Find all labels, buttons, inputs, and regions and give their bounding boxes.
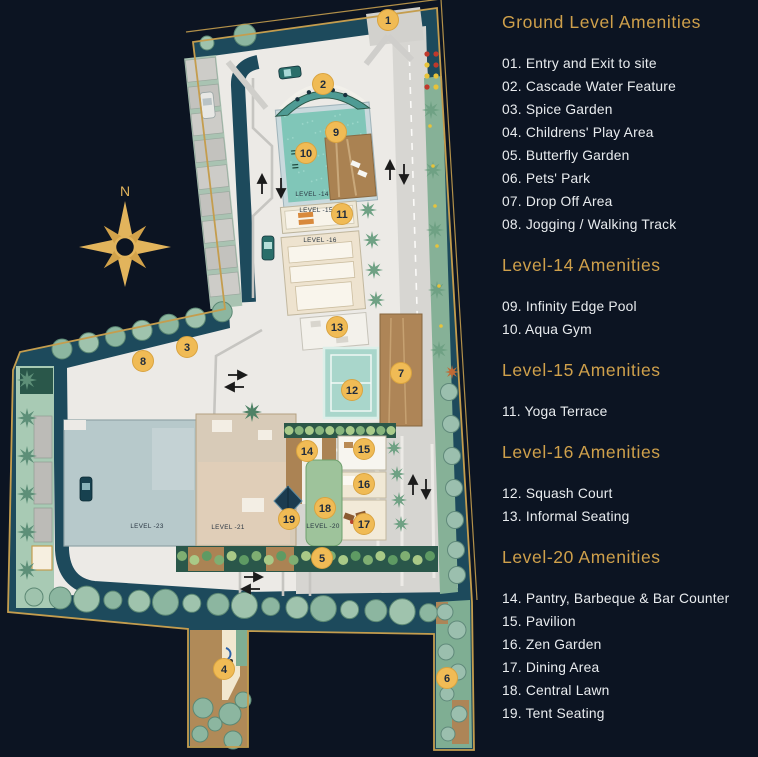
garden-plant-icon <box>251 551 261 561</box>
tree-icon <box>208 717 222 731</box>
legend-item: 06. Pets' Park <box>502 167 756 190</box>
tree-icon <box>310 596 336 622</box>
palm-icon <box>17 522 37 542</box>
hedge-plant-icon <box>387 426 396 435</box>
legend-item: 11. Yoga Terrace <box>502 400 756 423</box>
flower-icon <box>433 204 437 208</box>
plan-level-label: LEVEL -21 <box>211 524 245 531</box>
amenities-legend: Ground Level Amenities01. Entry and Exit… <box>502 12 756 744</box>
legend-section: Level-14 Amenities09. Infinity Edge Pool… <box>502 255 756 341</box>
map-marker-18: 18 <box>315 498 336 519</box>
legend-section: Level-16 Amenities12. Squash Court13. In… <box>502 442 756 528</box>
tree-icon <box>193 698 213 718</box>
garden-plant-icon <box>227 551 237 561</box>
map-marker-10: 10 <box>296 143 317 164</box>
compass-north-label: N <box>120 183 130 199</box>
tree-icon <box>207 593 229 615</box>
garden-plant-icon <box>363 555 373 565</box>
map-marker-6: 6 <box>437 668 458 689</box>
tree-icon <box>446 480 463 497</box>
map-marker-2: 2 <box>313 74 334 95</box>
tree-icon <box>186 308 206 328</box>
legend-item: 14. Pantry, Barbeque & Bar Counter <box>502 587 756 610</box>
hedge-plant-icon <box>366 426 375 435</box>
palm-icon <box>242 402 262 422</box>
map-marker-1: 1 <box>378 10 399 31</box>
tree-icon <box>262 597 280 615</box>
tree-icon <box>200 36 214 50</box>
tree-icon <box>132 320 152 340</box>
map-marker-number: 13 <box>331 322 343 334</box>
hedge-plant-icon <box>315 426 324 435</box>
plan-level-label: LEVEL -23 <box>130 523 164 530</box>
legend-item: 19. Tent Seating <box>502 702 756 725</box>
garden-plant-icon <box>388 555 398 565</box>
palm-icon <box>426 221 444 239</box>
parking-stall <box>197 165 229 190</box>
parking-stall <box>199 191 231 216</box>
legend-item: 17. Dining Area <box>502 656 756 679</box>
tree-icon <box>440 687 454 701</box>
hedge-plant-icon <box>305 426 314 435</box>
flower-icon <box>424 73 429 78</box>
flower-icon <box>424 62 429 67</box>
legend-section-title: Level-14 Amenities <box>502 255 756 275</box>
garden-plant-icon <box>239 555 249 565</box>
palm-icon <box>422 101 440 119</box>
flower-icon <box>433 51 438 56</box>
legend-section-title: Level-15 Amenities <box>502 360 756 380</box>
tree-icon <box>441 384 458 401</box>
flower-icon <box>433 73 438 78</box>
legend-item: 10. Aqua Gym <box>502 318 756 341</box>
map-marker-15: 15 <box>354 439 375 460</box>
parking-stall <box>194 138 226 163</box>
tree-icon <box>25 588 43 606</box>
map-marker-12: 12 <box>342 380 363 401</box>
map-marker-17: 17 <box>354 514 375 535</box>
legend-section: Ground Level Amenities01. Entry and Exit… <box>502 12 756 236</box>
hedge-plant-icon <box>295 426 304 435</box>
tree-icon <box>365 600 387 622</box>
parking-stall <box>202 218 234 243</box>
map-marker-number: 6 <box>444 673 450 685</box>
map-marker-number: 16 <box>358 479 370 491</box>
legend-item: 04. Childrens' Play Area <box>502 121 756 144</box>
map-marker-number: 19 <box>283 514 295 526</box>
tree-icon <box>74 586 100 612</box>
tree-icon <box>183 594 201 612</box>
map-marker-9: 9 <box>326 122 347 143</box>
map-marker-5: 5 <box>312 548 333 569</box>
tree-icon <box>448 621 466 639</box>
palm-icon <box>430 341 448 359</box>
palm-icon <box>17 560 37 580</box>
map-marker-7: 7 <box>391 363 412 384</box>
palm-icon <box>17 484 37 504</box>
tree-icon <box>447 512 464 529</box>
map-marker-14: 14 <box>297 441 318 462</box>
map-marker-16: 16 <box>354 474 375 495</box>
garden-plant-icon <box>425 551 435 561</box>
palm-icon <box>367 291 385 309</box>
palm-icon <box>424 161 442 179</box>
tree-icon <box>389 599 415 625</box>
hedge-plant-icon <box>285 426 294 435</box>
tree-icon <box>104 591 122 609</box>
palm-icon <box>389 466 405 482</box>
flower-icon <box>435 244 439 248</box>
palm-icon <box>393 516 409 532</box>
garden-plant-icon <box>301 551 311 561</box>
map-marker-number: 4 <box>221 664 228 676</box>
flower-icon <box>433 62 438 67</box>
flower-icon <box>439 324 443 328</box>
legend-section-title: Level-20 Amenities <box>502 547 756 567</box>
car-icon <box>278 66 301 80</box>
site-plan-map: N LEVEL -14LEVEL -15LEVEL -16LEVEL -23LE… <box>0 0 485 757</box>
parking-stall <box>185 57 217 82</box>
hedge-plant-icon <box>376 426 385 435</box>
butterfly-garden-strip <box>176 546 438 572</box>
map-marker-number: 2 <box>320 79 326 91</box>
tree-icon <box>444 448 461 465</box>
palm-icon <box>365 261 383 279</box>
flowering-palm-icon <box>445 365 459 379</box>
flower-icon <box>428 124 432 128</box>
legend-item: 09. Infinity Edge Pool <box>502 295 756 318</box>
palm-icon <box>391 492 407 508</box>
tree-icon <box>159 314 179 334</box>
tree-icon <box>438 644 454 660</box>
hedge-plant-icon <box>336 426 345 435</box>
map-marker-number: 12 <box>346 385 358 397</box>
flower-icon <box>424 51 429 56</box>
tree-icon <box>105 327 125 347</box>
hedge-plant-icon <box>346 426 355 435</box>
legend-item: 03. Spice Garden <box>502 98 756 121</box>
legend-item: 05. Butterfly Garden <box>502 144 756 167</box>
palm-icon <box>17 370 37 390</box>
legend-item: 16. Zen Garden <box>502 633 756 656</box>
plan-level-label: LEVEL -14 <box>295 191 329 198</box>
plan-level-label: LEVEL -16 <box>303 237 337 244</box>
legend-item: 18. Central Lawn <box>502 679 756 702</box>
map-marker-number: 17 <box>358 519 370 531</box>
tree-icon <box>443 416 460 433</box>
map-marker-number: 8 <box>140 356 146 368</box>
legend-section: Level-20 Amenities14. Pantry, Barbeque &… <box>502 547 756 725</box>
tree-icon <box>153 589 179 615</box>
hedge-plant-icon <box>325 426 334 435</box>
legend-section-title: Ground Level Amenities <box>502 12 756 32</box>
map-marker-3: 3 <box>177 337 198 358</box>
garden-plant-icon <box>400 551 410 561</box>
tree-icon <box>231 592 257 618</box>
legend-item: 15. Pavilion <box>502 610 756 633</box>
legend-item: 01. Entry and Exit to site <box>502 52 756 75</box>
legend-item: 02. Cascade Water Feature <box>502 75 756 98</box>
plan-level-label: LEVEL -20 <box>306 523 340 530</box>
map-marker-number: 11 <box>336 209 348 221</box>
legend-section: Level-15 Amenities11. Yoga Terrace <box>502 360 756 423</box>
legend-item: 08. Jogging / Walking Track <box>502 213 756 236</box>
map-marker-number: 9 <box>333 127 339 139</box>
map-marker-number: 15 <box>358 444 370 456</box>
map-marker-number: 18 <box>319 503 331 515</box>
palm-icon <box>428 281 446 299</box>
flower-icon <box>431 164 435 168</box>
west-planters <box>34 416 52 542</box>
garden-plant-icon <box>276 551 286 561</box>
tree-icon <box>448 542 465 559</box>
hedge-plant-icon <box>356 426 365 435</box>
tree-icon <box>341 601 359 619</box>
parking-stall <box>205 245 237 270</box>
tree-icon <box>420 604 438 622</box>
map-marker-11: 11 <box>332 204 353 225</box>
tree-icon <box>451 706 467 722</box>
garden-plant-icon <box>351 551 361 561</box>
garden-plant-icon <box>264 555 274 565</box>
palm-icon <box>17 408 37 428</box>
flower-icon <box>433 84 438 89</box>
map-marker-number: 5 <box>319 553 325 565</box>
map-marker-number: 1 <box>385 15 391 27</box>
garden-plant-icon <box>177 551 187 561</box>
legend-item: 07. Drop Off Area <box>502 190 756 213</box>
flower-icon <box>424 84 429 89</box>
flower-icon <box>437 284 441 288</box>
garden-plant-icon <box>202 551 212 561</box>
west-pad <box>32 546 52 570</box>
compass-rose: N <box>79 183 171 289</box>
garden-plant-icon <box>214 555 224 565</box>
map-marker-number: 3 <box>184 342 190 354</box>
map-marker-number: 7 <box>398 368 404 380</box>
plan-level-label: LEVEL -15 <box>299 207 333 214</box>
palm-icon <box>363 231 381 249</box>
tree-icon <box>128 590 150 612</box>
map-marker-number: 10 <box>300 148 312 160</box>
tree-icon <box>449 567 466 584</box>
map-marker-number: 14 <box>301 446 314 458</box>
map-marker-8: 8 <box>133 351 154 372</box>
car-icon <box>262 236 274 260</box>
palm-icon <box>359 201 377 219</box>
tree-icon <box>192 726 208 742</box>
palm-icon <box>17 446 37 466</box>
palm-icon <box>386 440 402 456</box>
tree-icon <box>437 604 453 620</box>
tree-icon <box>286 597 308 619</box>
tree-icon <box>49 587 71 609</box>
legend-section-title: Level-16 Amenities <box>502 442 756 462</box>
garden-plant-icon <box>289 555 299 565</box>
legend-item: 13. Informal Seating <box>502 505 756 528</box>
garden-plant-icon <box>189 555 199 565</box>
map-marker-13: 13 <box>327 317 348 338</box>
garden-plant-icon <box>338 555 348 565</box>
legend-item: 12. Squash Court <box>502 482 756 505</box>
map-marker-4: 4 <box>214 659 235 680</box>
tree-icon <box>441 727 455 741</box>
map-marker-19: 19 <box>279 509 300 530</box>
site-plan-page: N LEVEL -14LEVEL -15LEVEL -16LEVEL -23LE… <box>0 0 758 757</box>
car-icon <box>80 477 92 501</box>
garden-plant-icon <box>375 551 385 561</box>
garden-plant-icon <box>413 555 423 565</box>
